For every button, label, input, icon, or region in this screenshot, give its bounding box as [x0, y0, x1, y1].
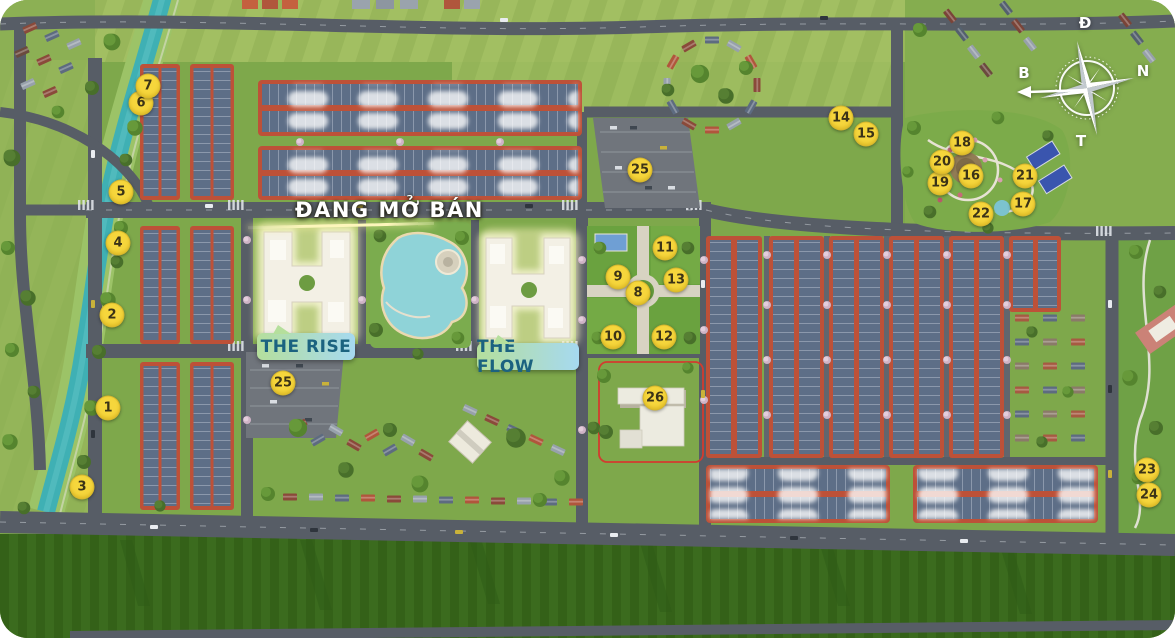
map-artwork [0, 0, 1175, 638]
zone-label-text: THE RISE [261, 337, 352, 357]
map-marker-13[interactable]: 13 [664, 268, 689, 293]
zone-label-text: THE FLOW [477, 337, 579, 377]
compass-icon: Đ N B T [1003, 6, 1173, 156]
map-marker-24[interactable]: 24 [1137, 483, 1162, 508]
map-marker-15[interactable]: 15 [854, 122, 879, 147]
map-marker-5[interactable]: 5 [109, 180, 134, 205]
map-marker-4[interactable]: 4 [106, 231, 131, 256]
map-marker-23[interactable]: 23 [1135, 458, 1160, 483]
the-flow-building [478, 228, 580, 348]
map-marker-20[interactable]: 20 [930, 150, 955, 175]
map-marker-17[interactable]: 17 [1011, 192, 1036, 217]
masterplan-map: ĐANG MỞ BÁN THE RISE THE FLOW Đ N B T 12… [0, 0, 1175, 638]
map-marker-9[interactable]: 9 [606, 265, 631, 290]
map-marker-16[interactable]: 16 [959, 164, 984, 189]
map-marker-3[interactable]: 3 [70, 475, 95, 500]
compass-north-label: B [1018, 64, 1029, 82]
map-marker-22[interactable]: 22 [969, 202, 994, 227]
compass-south-label: N [1137, 62, 1150, 80]
map-marker-11[interactable]: 11 [653, 236, 678, 261]
zone-label-the-flow[interactable]: THE FLOW [477, 343, 579, 370]
map-marker-25[interactable]: 25 [271, 371, 296, 396]
map-marker-8[interactable]: 8 [626, 281, 651, 306]
map-marker-26[interactable]: 26 [643, 386, 668, 411]
map-marker-7[interactable]: 7 [136, 74, 161, 99]
map-marker-25[interactable]: 25 [628, 158, 653, 183]
compass-east-label: Đ [1079, 14, 1092, 32]
map-marker-14[interactable]: 14 [829, 106, 854, 131]
map-marker-1[interactable]: 1 [96, 396, 121, 421]
map-marker-18[interactable]: 18 [950, 131, 975, 156]
map-marker-2[interactable]: 2 [100, 303, 125, 328]
now-selling-banner: ĐANG MỞ BÁN [295, 198, 484, 222]
now-selling-text: ĐANG MỞ BÁN [295, 198, 484, 222]
lagoon [381, 233, 467, 338]
the-rise-building [254, 222, 360, 346]
map-marker-21[interactable]: 21 [1013, 164, 1038, 189]
compass-west-label: T [1076, 132, 1087, 150]
zone-label-the-rise[interactable]: THE RISE [257, 333, 355, 360]
map-marker-10[interactable]: 10 [601, 325, 626, 350]
map-marker-12[interactable]: 12 [652, 325, 677, 350]
